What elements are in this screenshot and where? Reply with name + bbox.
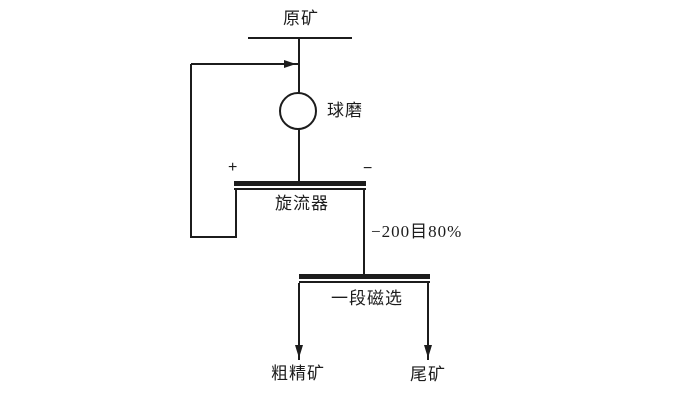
recirc-return-line [191,63,299,65]
tailings-label: 尾矿 [410,366,446,385]
raw-ore-label: 原矿 [283,10,319,29]
cyclone-symbol-underline [234,188,366,190]
cyclone-symbol-bar [234,181,366,186]
flowsheet-diagram: 原矿 球磨 + − 旋流器 −200目80% 一段磁选 粗精矿 尾矿 [0,0,695,414]
concentrate-arrowhead-icon [295,345,303,358]
cyclone-plus-sign: + [228,159,237,177]
mill-to-cyclone-line [298,129,300,182]
recirc-left-line [190,64,192,238]
magnetic-separation-label: 一段磁选 [331,290,403,309]
recirc-arrowhead-icon [284,60,296,68]
recirc-bottom-line [190,236,237,238]
cyclone-underflow-line [235,189,237,238]
tailings-arrowhead-icon [424,345,432,358]
cyclone-overflow-line [363,190,365,275]
magnetic-separator-bar [299,274,430,279]
overflow-fineness-label: −200目80% [371,223,462,242]
rough-concentrate-label: 粗精矿 [271,365,325,384]
magnetic-separator-underline [299,281,430,283]
cyclone-minus-sign: − [363,160,372,178]
cyclone-label: 旋流器 [275,195,329,214]
feed-to-mill-line [298,38,300,93]
ball-mill-label: 球磨 [327,102,363,121]
raw-ore-feed-line [248,37,352,39]
ball-mill-symbol [279,92,317,130]
